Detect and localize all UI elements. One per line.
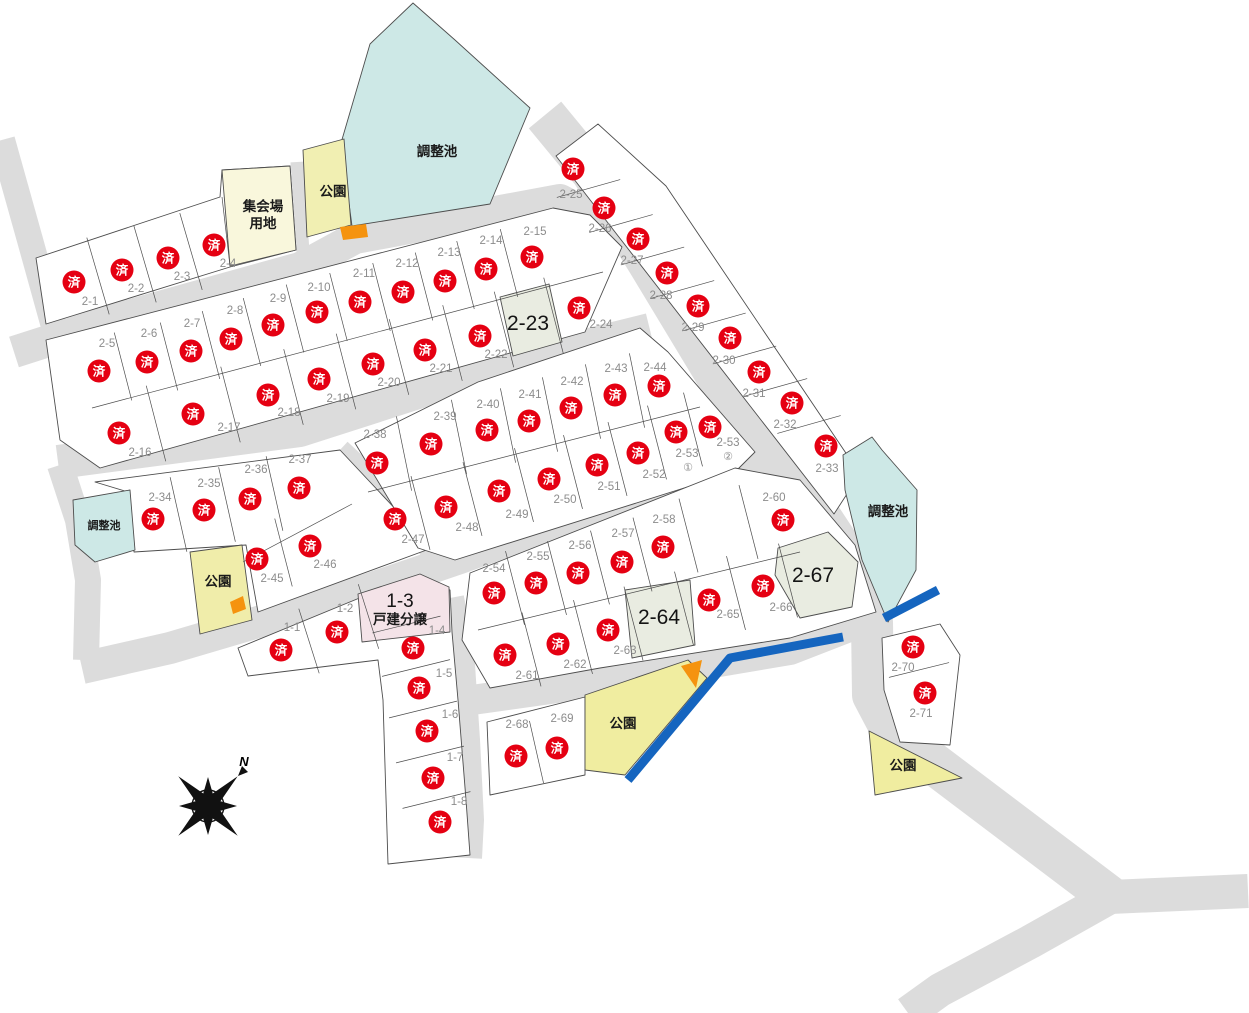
sold-mark-text: 済 xyxy=(616,555,629,570)
lot-number-label: 2-2 xyxy=(128,283,145,295)
lot-number-label: 2-53 xyxy=(675,448,698,460)
sold-mark-text: 済 xyxy=(474,329,487,344)
sold-mark-text: 済 xyxy=(523,414,536,429)
lot-number-label: 2-10 xyxy=(307,282,330,294)
sold-mark-text: 済 xyxy=(632,446,645,461)
lot-number-label: 2-69 xyxy=(550,713,573,725)
lot-number-label: 1-2 xyxy=(337,603,354,615)
lot-2-67[interactable]: 2-67 xyxy=(792,564,834,587)
lot-number-label: 2-1 xyxy=(82,296,99,308)
lot-number-label: 1-4 xyxy=(429,625,446,637)
road xyxy=(908,897,1110,1013)
lot-number-label: 2-65 xyxy=(716,609,739,621)
sold-mark-text: 済 xyxy=(565,401,578,416)
sold-mark-text: 済 xyxy=(389,512,402,527)
lot-number-label: 1-7 xyxy=(447,752,464,764)
lot-number-label: 2-13 xyxy=(437,247,460,259)
lot-number-label: 2-17 xyxy=(217,422,240,434)
sold-mark-text: 済 xyxy=(786,396,799,411)
lot-number-label: 2-38 xyxy=(363,429,386,441)
area-label: 公園 xyxy=(610,716,637,731)
lot-2-64[interactable]: 2-64 xyxy=(638,606,680,629)
road xyxy=(1110,891,1248,897)
lot-number-label: 2-60 xyxy=(762,492,785,504)
sold-mark-text: 済 xyxy=(116,263,129,278)
lot-number-sub-label: ② xyxy=(723,451,733,463)
lot-number-label: 2-55 xyxy=(526,551,549,563)
sold-mark-text: 済 xyxy=(526,250,539,265)
sold-mark-text: 済 xyxy=(187,407,200,422)
compass-star-diagonal xyxy=(149,747,268,866)
sold-mark-text: 済 xyxy=(820,439,833,454)
sold-mark-text: 済 xyxy=(425,437,438,452)
lot-number-label: 2-27 xyxy=(620,255,643,267)
sold-mark-text: 済 xyxy=(419,343,432,358)
lot-number-label: 1-1 xyxy=(284,622,301,634)
lot-number-label: 2-39 xyxy=(433,411,456,423)
lot-number-label: 1-8 xyxy=(451,796,468,808)
area-label: 調整池 xyxy=(88,518,121,532)
lot-number-label: 2-26 xyxy=(588,223,611,235)
sold-mark-text: 済 xyxy=(293,481,306,496)
sold-mark-text: 済 xyxy=(704,420,717,435)
sold-mark-text: 済 xyxy=(481,423,494,438)
lot-number-label: 2-61 xyxy=(515,670,538,682)
sold-mark-text: 済 xyxy=(661,266,674,281)
sold-mark-text: 済 xyxy=(251,552,264,567)
sold-mark-text: 済 xyxy=(93,364,106,379)
north-label: N xyxy=(239,754,249,769)
sold-mark-text: 済 xyxy=(657,540,670,555)
available-lot-label: 2-67 xyxy=(792,564,834,587)
lot-number-label: 2-68 xyxy=(505,719,528,731)
sold-mark-text: 済 xyxy=(440,500,453,515)
lot-number-label: 1-5 xyxy=(436,668,453,680)
area-label: 公園 xyxy=(890,758,917,773)
sold-mark-text: 済 xyxy=(777,513,790,528)
lot-number-label: 2-32 xyxy=(773,419,796,431)
sold-mark-text: 済 xyxy=(304,539,317,554)
sold-mark-text: 済 xyxy=(907,640,920,655)
subdivision-number-label: 1-3 xyxy=(386,591,413,612)
lot-number-label: 1-6 xyxy=(442,709,459,721)
lot-number-label: 2-7 xyxy=(184,318,201,330)
lot-number-label: 2-8 xyxy=(227,305,244,317)
sold-mark-text: 済 xyxy=(208,238,221,253)
area-label: 調整池 xyxy=(417,143,458,159)
lot-number-label: 2-5 xyxy=(99,338,116,350)
lot-number-label: 2-63 xyxy=(613,645,636,657)
sold-mark-text: 済 xyxy=(591,458,604,473)
sold-mark-text: 済 xyxy=(530,576,543,591)
sold-mark-text: 済 xyxy=(573,301,586,316)
lot-number-label: 2-35 xyxy=(197,478,220,490)
lot-number-label: 2-18 xyxy=(277,407,300,419)
lot-number-label: 2-71 xyxy=(909,708,932,720)
lot-number-label: 2-43 xyxy=(604,363,627,375)
lot-number-label: 2-37 xyxy=(288,454,311,466)
sold-mark-text: 済 xyxy=(543,472,556,487)
subdivision-type-label: 戸建分譲 xyxy=(373,611,427,627)
lot-number-label: 2-3 xyxy=(174,271,191,283)
lot-2-23[interactable]: 2-23 xyxy=(507,312,549,335)
lot-number-label: 2-12 xyxy=(395,258,418,270)
lot-number-label: 2-50 xyxy=(553,494,576,506)
sold-mark-text: 済 xyxy=(275,643,288,658)
sold-mark-text: 済 xyxy=(653,379,666,394)
sold-mark-text: 済 xyxy=(354,295,367,310)
lot-number-label: 2-4 xyxy=(220,258,237,270)
lot-number-label: 2-33 xyxy=(815,463,838,475)
sold-mark-text: 済 xyxy=(225,332,238,347)
sold-mark-text: 済 xyxy=(141,355,154,370)
lot-number-label: 2-24 xyxy=(589,319,613,331)
available-lot-label: 2-64 xyxy=(638,606,680,629)
lot-number-label: 2-16 xyxy=(128,447,151,459)
area-label: 公園 xyxy=(320,184,347,199)
area-label: 調整池 xyxy=(868,503,909,519)
sold-mark-text: 済 xyxy=(413,681,426,696)
sold-mark-text: 済 xyxy=(499,648,512,663)
sold-mark-text: 済 xyxy=(68,275,81,290)
sold-mark-text: 済 xyxy=(552,637,565,652)
area-label: 集会場 xyxy=(242,198,284,214)
sold-mark-text: 済 xyxy=(313,372,326,387)
sold-mark-text: 済 xyxy=(331,625,344,640)
lot-number-label: 2-45 xyxy=(260,573,283,585)
lot-number-label: 2-28 xyxy=(649,290,672,302)
lot-number-label: 2-25 xyxy=(559,189,582,201)
sold-mark-text: 済 xyxy=(602,623,615,638)
block xyxy=(487,697,585,795)
lot-number-label: 2-53 xyxy=(716,437,739,449)
sold-mark-text: 済 xyxy=(551,741,564,756)
area-label: 用地 xyxy=(250,215,277,231)
sold-mark-text: 済 xyxy=(439,274,452,289)
lot-number-label: 2-30 xyxy=(712,355,735,367)
sold-mark-text: 済 xyxy=(757,579,770,594)
compass-rose: N xyxy=(149,747,268,866)
sold-mark-text: 済 xyxy=(488,586,501,601)
lot-number-sub-label: ① xyxy=(683,462,693,474)
lot-number-label: 2-47 xyxy=(401,534,424,546)
sold-mark-text: 済 xyxy=(567,162,580,177)
area-label: 公園 xyxy=(205,574,232,589)
lot-number-label: 2-51 xyxy=(597,481,620,493)
lot-number-label: 2-29 xyxy=(681,322,704,334)
sold-mark-text: 済 xyxy=(397,285,410,300)
sold-mark-text: 済 xyxy=(367,357,380,372)
lot-number-label: 2-31 xyxy=(742,388,765,400)
sold-mark-text: 済 xyxy=(162,251,175,266)
lot-number-label: 2-19 xyxy=(326,393,349,405)
lot-number-label: 2-57 xyxy=(611,528,634,540)
lot-number-label: 2-44 xyxy=(643,362,667,374)
sold-mark-text: 済 xyxy=(147,512,160,527)
sold-mark-text: 済 xyxy=(670,425,683,440)
lot-number-label: 2-42 xyxy=(560,376,583,388)
lot-number-label: 2-58 xyxy=(652,514,675,526)
lot-number-label: 2-11 xyxy=(353,268,375,280)
lot-number-label: 2-48 xyxy=(455,522,478,534)
available-lot-label: 2-23 xyxy=(507,312,549,335)
road xyxy=(297,162,303,252)
sold-mark-text: 済 xyxy=(198,503,211,518)
sold-mark-text: 済 xyxy=(598,201,611,216)
sold-mark-text: 済 xyxy=(572,566,585,581)
lot-number-label: 2-66 xyxy=(769,602,792,614)
sold-mark-text: 済 xyxy=(185,344,198,359)
sold-mark-text: 済 xyxy=(480,262,493,277)
sold-mark-text: 済 xyxy=(609,388,622,403)
sold-mark-text: 済 xyxy=(510,749,523,764)
road xyxy=(60,465,88,660)
lot-number-label: 2-41 xyxy=(518,389,541,401)
lot-number-label: 2-49 xyxy=(505,509,528,521)
lot-number-label: 2-70 xyxy=(891,662,914,674)
sold-mark-text: 済 xyxy=(371,456,384,471)
lot-number-label: 2-14 xyxy=(479,235,503,247)
sold-mark-text: 済 xyxy=(113,426,126,441)
sold-mark-text: 済 xyxy=(262,388,275,403)
lot-number-label: 2-52 xyxy=(642,469,665,481)
lot-number-label: 2-62 xyxy=(563,659,586,671)
sold-mark-text: 済 xyxy=(692,299,705,314)
sold-mark-text: 済 xyxy=(434,815,447,830)
lot-number-label: 2-34 xyxy=(148,492,172,504)
sold-mark-text: 済 xyxy=(267,318,280,333)
sold-mark-text: 済 xyxy=(493,484,506,499)
sold-mark-text: 済 xyxy=(632,232,645,247)
sold-mark-text: 済 xyxy=(703,593,716,608)
sold-mark-text: 済 xyxy=(311,305,324,320)
lot-number-label: 2-22 xyxy=(484,349,507,361)
lot-number-label: 2-54 xyxy=(482,563,506,575)
subdivision-map-page: 済2-1済2-2済2-3済2-4済2-5済2-6済2-7済2-8済2-9済2-1… xyxy=(0,0,1249,1013)
lot-number-label: 2-46 xyxy=(313,559,336,571)
retention-pond xyxy=(341,3,530,226)
lot-number-label: 2-15 xyxy=(523,226,546,238)
lot-number-label: 2-56 xyxy=(568,540,591,552)
sold-mark-text: 済 xyxy=(724,331,737,346)
lot-number-label: 2-40 xyxy=(476,399,499,411)
lot-number-label: 2-36 xyxy=(244,464,267,476)
site-map: 済2-1済2-2済2-3済2-4済2-5済2-6済2-7済2-8済2-9済2-1… xyxy=(0,0,1249,1013)
sold-mark-text: 済 xyxy=(244,492,257,507)
park xyxy=(190,545,252,634)
lot-number-label: 2-20 xyxy=(377,377,400,389)
sold-mark-text: 済 xyxy=(427,771,440,786)
sold-mark-text: 済 xyxy=(421,724,434,739)
sold-mark-text: 済 xyxy=(753,365,766,380)
sold-mark-text: 済 xyxy=(407,641,420,656)
lot-number-label: 2-9 xyxy=(270,293,287,305)
lot-number-label: 2-6 xyxy=(141,328,158,340)
lot-number-label: 2-21 xyxy=(429,363,452,375)
sold-mark-text: 済 xyxy=(919,686,932,701)
